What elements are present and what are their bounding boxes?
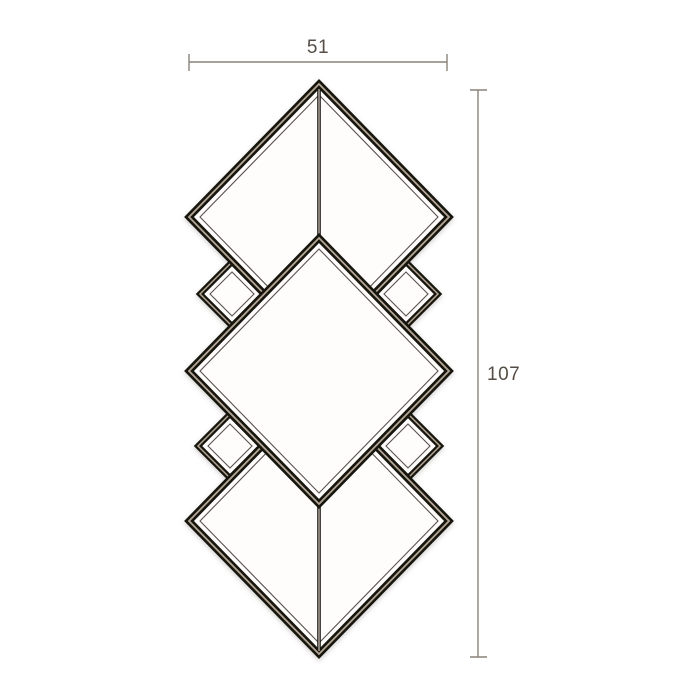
mirror	[189, 84, 449, 654]
diagram-svg: 51 107	[0, 0, 700, 700]
width-dimension: 51	[189, 37, 447, 71]
dimension-diagram: 51 107	[0, 0, 700, 700]
width-dimension-label: 51	[307, 37, 329, 58]
height-dimension: 107	[470, 90, 520, 657]
height-dimension-label: 107	[487, 364, 520, 385]
